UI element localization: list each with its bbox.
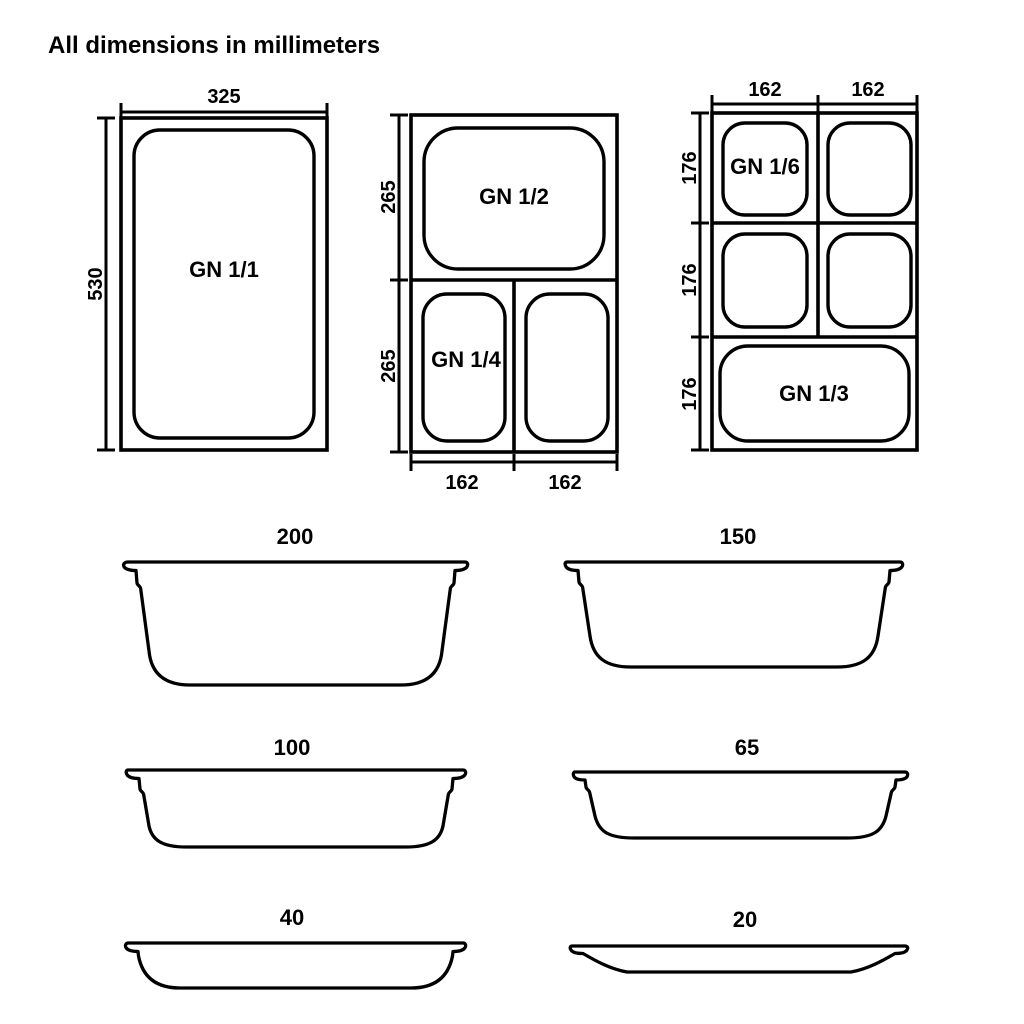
pan-profile-100: 100 <box>118 728 473 853</box>
technical-drawing-canvas: All dimensions in millimeters 325 530 GN… <box>0 0 1024 1024</box>
pan-depth-200-label: 200 <box>277 524 314 549</box>
pan-profile-100-outline <box>126 770 465 847</box>
pan-profile-200-outline <box>124 562 468 685</box>
gn16-width-dimension-line <box>712 95 917 113</box>
pan-profile-65-outline <box>573 772 907 838</box>
gn16-height-row3-value: 176 <box>679 377 701 410</box>
gn16-width-col1-value: 162 <box>748 79 781 101</box>
gn16-width-col2-value: 162 <box>851 79 884 101</box>
pan-profile-20-outline <box>570 946 907 972</box>
pan-depth-20-label: 20 <box>733 907 757 932</box>
gn11-diagram: 325 530 GN 1/1 <box>85 75 340 465</box>
pan-profile-200: 200 <box>118 518 473 693</box>
pan-profile-150-outline <box>565 562 903 667</box>
gn16-gn13-diagram: 162 162 176 176 176 GN 1/6 GN 1/3 <box>680 70 935 465</box>
gn16-pan-rect-mid-right <box>828 234 911 327</box>
gn16-pan-rect-mid-left <box>723 234 807 327</box>
gn14-pan-rect-right <box>526 294 608 441</box>
gn16-label: GN 1/6 <box>730 154 800 179</box>
gn16-height-row2-value: 176 <box>679 263 701 296</box>
gn12-gn14-diagram: 265 265 GN 1/2 GN 1/4 162 162 <box>370 75 635 500</box>
gn11-label: GN 1/1 <box>189 257 259 282</box>
pan-profile-40: 40 <box>118 898 473 996</box>
page-title: All dimensions in millimeters <box>48 32 380 60</box>
pan-depth-65-label: 65 <box>735 735 759 760</box>
gn11-width-value: 325 <box>207 86 240 108</box>
pan-depth-150-label: 150 <box>720 524 757 549</box>
pan-profile-150: 150 <box>558 518 910 673</box>
pan-depth-40-label: 40 <box>280 905 304 930</box>
gn12-height-bottom-value: 265 <box>378 349 400 382</box>
gn11-height-value: 530 <box>85 267 107 300</box>
gn11-pan-rect <box>134 130 314 438</box>
pan-depth-100-label: 100 <box>274 735 311 760</box>
gn12-label: GN 1/2 <box>479 184 549 209</box>
gn16-height-row1-value: 176 <box>679 151 701 184</box>
gn14-width-dimension-line <box>411 454 617 471</box>
gn14-width-right-value: 162 <box>548 472 581 494</box>
pan-profile-65: 65 <box>563 728 915 846</box>
gn12-height-dimension-line <box>390 115 408 452</box>
gn14-label: GN 1/4 <box>431 347 501 372</box>
gn14-width-left-value: 162 <box>445 472 478 494</box>
gn16-pan-rect-top-right <box>828 123 911 215</box>
pan-profile-20: 20 <box>563 898 915 980</box>
gn11-outer-rect <box>121 118 327 450</box>
gn12-height-top-value: 265 <box>378 180 400 213</box>
gn13-label: GN 1/3 <box>779 381 849 406</box>
pan-profile-40-outline <box>125 943 465 988</box>
